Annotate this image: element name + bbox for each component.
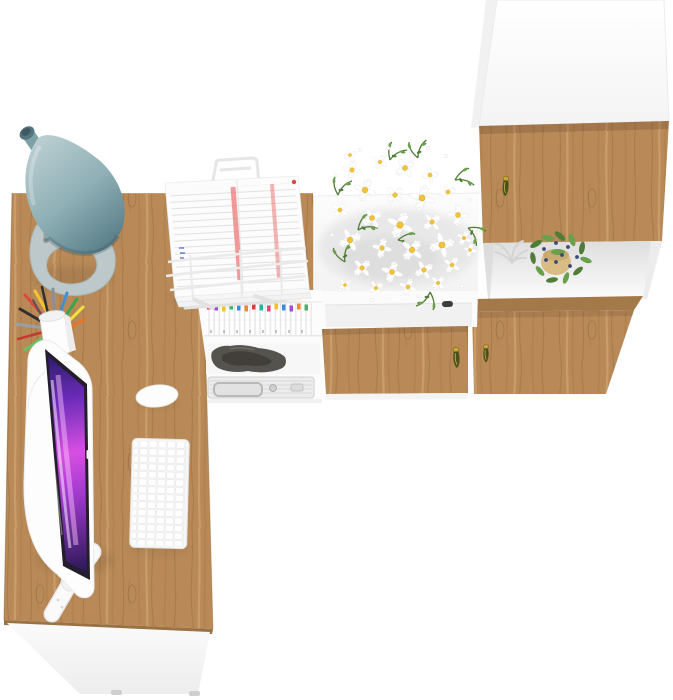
sideboard-drawer bbox=[322, 326, 468, 394]
furniture-render: Tall white wardrobe with oak doors and o… bbox=[0, 0, 673, 700]
document-stand: White wire document stand holding papers bbox=[165, 158, 311, 308]
furniture-render-stage: Tall white wardrobe with oak doors and o… bbox=[0, 0, 673, 700]
cabinet-lower-door bbox=[472, 310, 634, 394]
monitor-button bbox=[87, 450, 91, 459]
keyboard-keys bbox=[132, 441, 187, 545]
desk-front-panel bbox=[7, 623, 210, 694]
case-latch bbox=[291, 384, 303, 391]
keyboard: White compact wireless keyboard bbox=[128, 438, 191, 556]
tall-cabinet: Tall white wardrobe with oak doors and o… bbox=[471, 0, 669, 394]
case-handle bbox=[214, 383, 262, 396]
cabinet-lower-handle bbox=[483, 344, 488, 362]
desk-lamp: Teal cone desk lamp bbox=[17, 123, 125, 295]
sideboard-knob bbox=[442, 301, 453, 307]
sideboard-base bbox=[326, 393, 468, 400]
binder-row bbox=[206, 303, 312, 335]
shelf-interior bbox=[483, 241, 662, 299]
metal-case bbox=[208, 377, 314, 398]
red-dot bbox=[292, 180, 296, 184]
case-knob bbox=[270, 385, 277, 392]
cabinet-top bbox=[479, 0, 669, 126]
